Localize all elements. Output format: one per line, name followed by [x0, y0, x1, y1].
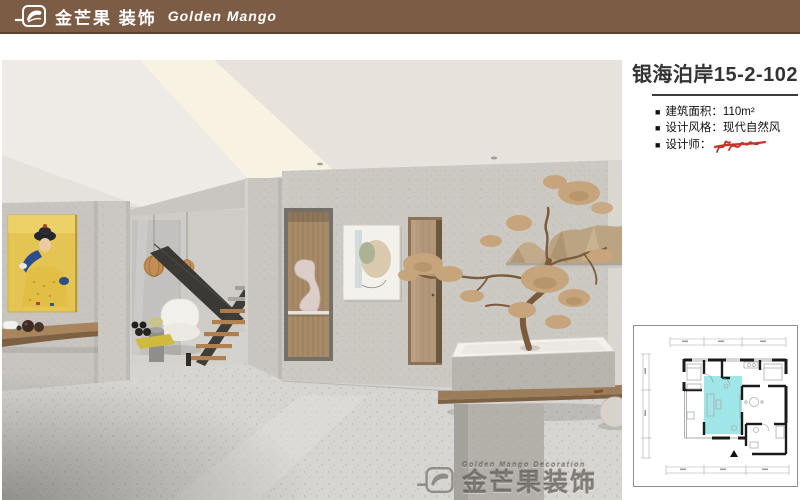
- presentation-board: 金芒果 装饰 Golden Mango: [0, 0, 800, 500]
- detail-row-designer: ■ 设计师：: [655, 136, 798, 156]
- stone-planter: [452, 337, 615, 391]
- watermark-tagline: Golden Mango Decoration: [462, 462, 597, 469]
- watermark: Golden Mango Decoration 金芒果装饰: [416, 450, 622, 496]
- brand-name-cn: 金芒果 装饰: [55, 4, 157, 29]
- display-niche: [284, 208, 333, 361]
- detail-row-style: ■ 设计风格：现代自然风: [655, 121, 798, 137]
- detail-row-area: ■ 建筑面积：110m²: [655, 105, 798, 121]
- designer-signature: [713, 136, 767, 156]
- bullet-square-icon: ■: [655, 105, 660, 121]
- abstract-artwork: [343, 225, 402, 302]
- header-bar: 金芒果 装饰 Golden Mango: [0, 0, 800, 34]
- bullet-square-icon: ■: [655, 138, 660, 154]
- detail-style-text: 设计风格：现代自然风: [665, 121, 780, 137]
- brand-name-en: Golden Mango: [168, 8, 277, 24]
- interior-rendering: Golden Mango Decoration 金芒果装饰: [2, 60, 622, 500]
- wood-door: [408, 217, 442, 365]
- plan-highlight-area: [704, 376, 742, 434]
- watermark-logo-icon: [416, 464, 456, 496]
- detail-area-text: 建筑面积：110m²: [665, 105, 754, 121]
- floor-plan-drawing: [634, 326, 797, 486]
- brand-logo: 金芒果 装饰 Golden Mango: [14, 3, 277, 29]
- floor-plan-thumbnail: [633, 325, 798, 487]
- project-title: 银海泊岸15-2-102: [630, 58, 798, 87]
- detail-designer-text: 设计师：: [665, 138, 711, 154]
- interior-rendering-scene: [2, 60, 622, 500]
- bullet-square-icon: ■: [655, 121, 660, 137]
- watermark-brand: 金芒果装饰: [462, 471, 597, 496]
- title-divider: [652, 94, 798, 96]
- project-details: ■ 建筑面积：110m² ■ 设计风格：现代自然风 ■ 设计师：: [630, 105, 798, 156]
- project-info-panel: 银海泊岸15-2-102 ■ 建筑面积：110m² ■ 设计风格：现代自然风 ■…: [630, 58, 798, 156]
- emperor-portrait-painting: [8, 215, 77, 312]
- golden-mango-logo-icon: [14, 3, 48, 29]
